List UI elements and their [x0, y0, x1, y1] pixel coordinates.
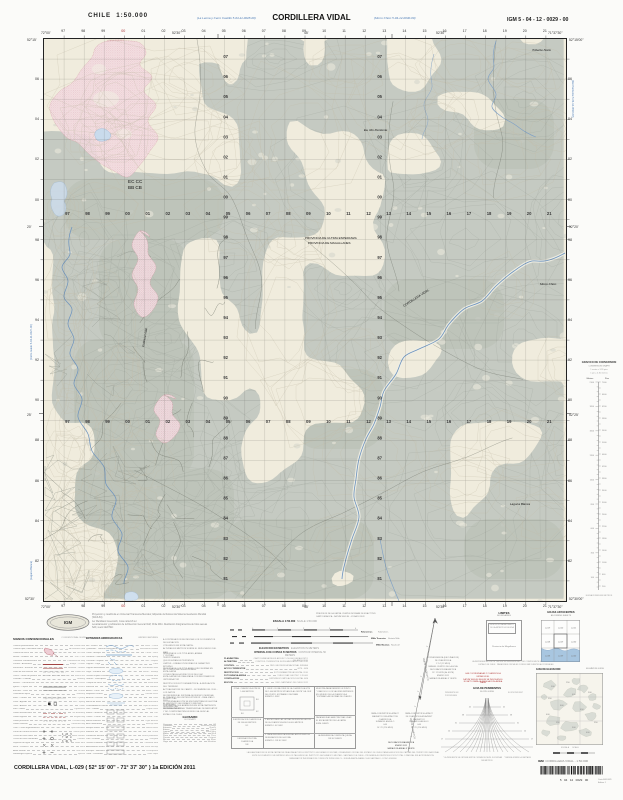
svg-text:92: 92 [377, 355, 382, 360]
svg-text:18: 18 [487, 419, 492, 424]
svg-text:BB CB: BB CB [128, 185, 142, 190]
svg-text:11: 11 [346, 419, 351, 424]
svg-text:09: 09 [306, 419, 311, 424]
svg-text:88: 88 [377, 435, 382, 440]
svg-text:2600: 2600 [602, 514, 607, 516]
svg-text:15: 15 [427, 419, 432, 424]
svg-text:97: 97 [223, 255, 228, 260]
svg-text:1400: 1400 [602, 550, 607, 552]
svg-text:94: 94 [223, 315, 228, 320]
svg-text:GRAFICO DE CONVERSION: GRAFICO DE CONVERSION [582, 360, 617, 364]
svg-text:05: 05 [226, 419, 231, 424]
svg-text:L-040: L-040 [571, 656, 577, 658]
svg-text:99: 99 [105, 419, 110, 424]
svg-text:Laguna Blanca: Laguna Blanca [510, 502, 530, 506]
svg-text:850: 850 [591, 504, 595, 506]
svg-text:88: 88 [223, 435, 228, 440]
svg-text:83: 83 [377, 536, 382, 541]
svg-text:81: 81 [223, 576, 228, 581]
svg-text:L-021: L-021 [571, 628, 577, 630]
svg-text:IGM: IGM [64, 620, 73, 625]
svg-text:01: 01 [145, 419, 150, 424]
svg-text:90: 90 [377, 395, 382, 400]
svg-text:45: 45 [469, 707, 471, 709]
svg-text:100: 100 [591, 577, 595, 579]
svg-text:4600: 4600 [602, 454, 607, 456]
svg-text:91: 91 [223, 375, 228, 380]
svg-text:86: 86 [377, 476, 382, 481]
svg-text:4200: 4200 [602, 466, 607, 468]
svg-text:06: 06 [246, 419, 251, 424]
svg-text:10: 10 [326, 419, 331, 424]
svg-text:91: 91 [377, 375, 382, 380]
svg-text:96: 96 [223, 275, 228, 280]
svg-text:98: 98 [85, 419, 90, 424]
svg-text:06: 06 [223, 74, 228, 79]
svg-text:16: 16 [447, 211, 452, 216]
svg-text:98: 98 [85, 211, 90, 216]
svg-text:Metros: Metros [587, 377, 595, 380]
svg-text:4: 4 [355, 628, 357, 630]
svg-text:00: 00 [223, 195, 228, 200]
svg-text:99: 99 [105, 211, 110, 216]
svg-text:6200: 6200 [602, 406, 607, 408]
svg-text:96: 96 [377, 275, 382, 280]
svg-text:89: 89 [377, 415, 382, 420]
svg-text:PROVINCIA DE MAGALLANES: PROVINCIA DE MAGALLANES [308, 241, 351, 245]
svg-text:1850: 1850 [590, 406, 595, 408]
svg-text:06: 06 [246, 211, 251, 216]
svg-text:19: 19 [507, 211, 512, 216]
svg-text:93: 93 [377, 335, 382, 340]
svg-text:92: 92 [223, 355, 228, 360]
svg-text:07: 07 [377, 54, 382, 59]
svg-text:82: 82 [223, 556, 228, 561]
svg-text:3000: 3000 [602, 502, 607, 504]
svg-text:62: 62 [256, 711, 259, 713]
svg-text:600: 600 [602, 574, 606, 576]
svg-text:09: 09 [306, 211, 311, 216]
svg-text:Tridente Norte: Tridente Norte [532, 48, 551, 52]
svg-text:03: 03 [377, 134, 382, 139]
svg-text:00: 00 [125, 211, 130, 216]
svg-text:06: 06 [377, 74, 382, 79]
svg-text:13: 13 [386, 419, 391, 424]
svg-text:97: 97 [65, 211, 70, 216]
svg-text:03: 03 [223, 134, 228, 139]
svg-text:98: 98 [223, 235, 228, 240]
svg-text:05: 05 [377, 94, 382, 99]
svg-text:84: 84 [256, 699, 259, 701]
svg-text:24: 24 [524, 731, 526, 733]
svg-text:05: 05 [226, 211, 231, 216]
svg-text:07: 07 [266, 211, 271, 216]
svg-text:L-019: L-019 [545, 628, 551, 630]
svg-text:1 metro = 3.28 pies: 1 metro = 3.28 pies [590, 368, 607, 371]
svg-text:12: 12 [366, 211, 371, 216]
svg-text:87: 87 [377, 456, 382, 461]
svg-text:04: 04 [223, 114, 228, 119]
svg-text:99: 99 [377, 215, 382, 220]
svg-text:01: 01 [145, 211, 150, 216]
svg-text:13: 13 [386, 211, 391, 216]
svg-text:97: 97 [377, 255, 382, 260]
svg-text:CONVERSION GRAPH: CONVERSION GRAPH [588, 365, 610, 368]
svg-text:86: 86 [223, 476, 228, 481]
svg-text:14: 14 [406, 211, 411, 216]
svg-text:3400: 3400 [602, 490, 607, 492]
svg-text:21: 21 [547, 211, 552, 216]
svg-text:21: 21 [547, 419, 552, 424]
svg-text:38: 38 [462, 715, 464, 717]
svg-text:85: 85 [377, 496, 382, 501]
svg-text:17: 17 [467, 419, 472, 424]
svg-text:PROVINCIA DE ULTIMA ESPERANZA: PROVINCIA DE ULTIMA ESPERANZA [305, 236, 357, 240]
svg-text:EC CC: EC CC [128, 179, 143, 184]
svg-text:ELEVACIONES EN METROS: ELEVACIONES EN METROS [586, 594, 613, 597]
svg-text:1800: 1800 [602, 538, 607, 540]
svg-text:00: 00 [377, 195, 382, 200]
svg-text:2200: 2200 [602, 526, 607, 528]
svg-text:L-028: L-028 [545, 642, 551, 644]
svg-text:16: 16 [447, 419, 452, 424]
svg-text:20: 20 [527, 211, 532, 216]
svg-text:38: 38 [510, 715, 512, 717]
svg-text:02: 02 [166, 211, 171, 216]
svg-text:20: 20 [527, 419, 532, 424]
svg-text:1350: 1350 [590, 455, 595, 457]
svg-text:5400: 5400 [602, 430, 607, 432]
svg-text:Morro Chico: Morro Chico [540, 282, 557, 286]
svg-text:17: 17 [467, 211, 472, 216]
svg-text:87: 87 [223, 456, 228, 461]
svg-text:02: 02 [166, 419, 171, 424]
svg-text:83: 83 [223, 536, 228, 541]
svg-text:L-029: L-029 [558, 642, 564, 644]
svg-text:04: 04 [377, 114, 382, 119]
svg-text:6600: 6600 [602, 394, 607, 396]
svg-text:00: 00 [125, 419, 130, 424]
svg-text:95: 95 [377, 295, 382, 300]
svg-text:07: 07 [223, 54, 228, 59]
svg-text:85: 85 [223, 496, 228, 501]
svg-text:07: 07 [266, 419, 271, 424]
svg-text:90: 90 [223, 395, 228, 400]
svg-text:200: 200 [602, 586, 606, 588]
svg-text:02: 02 [223, 154, 228, 159]
svg-text:7000: 7000 [602, 382, 607, 384]
svg-text:84: 84 [377, 516, 382, 521]
svg-text:350: 350 [591, 553, 595, 555]
svg-text:18: 18 [487, 211, 492, 216]
svg-text:5800: 5800 [602, 418, 607, 420]
svg-text:01: 01 [377, 175, 382, 180]
svg-text:08: 08 [286, 211, 291, 216]
svg-text:31: 31 [455, 723, 457, 725]
svg-text:81: 81 [377, 576, 382, 581]
svg-text:L-030: L-030 [571, 642, 577, 644]
svg-text:82: 82 [377, 556, 382, 561]
svg-text:01: 01 [223, 175, 228, 180]
svg-text:14: 14 [406, 419, 411, 424]
svg-text:5000: 5000 [602, 442, 607, 444]
svg-text:1100: 1100 [590, 479, 595, 481]
svg-text:L-020: L-020 [558, 628, 564, 630]
svg-text:L-039: L-039 [558, 656, 564, 658]
svg-text:12: 12 [366, 419, 371, 424]
svg-text:1 pie = 0.30 metros: 1 pie = 0.30 metros [590, 371, 607, 374]
svg-text:98: 98 [377, 235, 382, 240]
svg-text:45: 45 [503, 707, 505, 709]
svg-text:08: 08 [286, 419, 291, 424]
svg-text:Pies: Pies [605, 378, 610, 380]
svg-text:11: 11 [346, 211, 351, 216]
svg-text:05: 05 [223, 94, 228, 99]
svg-text:03: 03 [186, 419, 191, 424]
svg-text:93: 93 [223, 335, 228, 340]
svg-text:03: 03 [186, 211, 191, 216]
svg-text:17: 17 [531, 739, 533, 741]
svg-text:97: 97 [65, 419, 70, 424]
svg-text:31: 31 [517, 723, 519, 725]
svg-text:24: 24 [448, 731, 450, 733]
svg-text:04: 04 [206, 211, 211, 216]
svg-text:600: 600 [591, 528, 595, 530]
svg-text:19: 19 [507, 419, 512, 424]
svg-text:95: 95 [223, 295, 228, 300]
svg-text:3800: 3800 [602, 478, 607, 480]
svg-text:1600: 1600 [590, 431, 595, 433]
svg-text:84: 84 [241, 713, 244, 715]
svg-text:1000: 1000 [602, 562, 607, 564]
svg-text:15: 15 [427, 211, 432, 216]
svg-text:04: 04 [206, 419, 211, 424]
svg-text:94: 94 [377, 315, 382, 320]
svg-text:02: 02 [377, 154, 382, 159]
svg-text:2100: 2100 [590, 382, 595, 384]
svg-text:84: 84 [223, 516, 228, 521]
svg-text:L-038: L-038 [545, 656, 551, 658]
svg-text:17: 17 [441, 739, 443, 741]
svg-text:10: 10 [326, 211, 331, 216]
svg-text:Ea. Rio Penitente: Ea. Rio Penitente [364, 128, 388, 132]
